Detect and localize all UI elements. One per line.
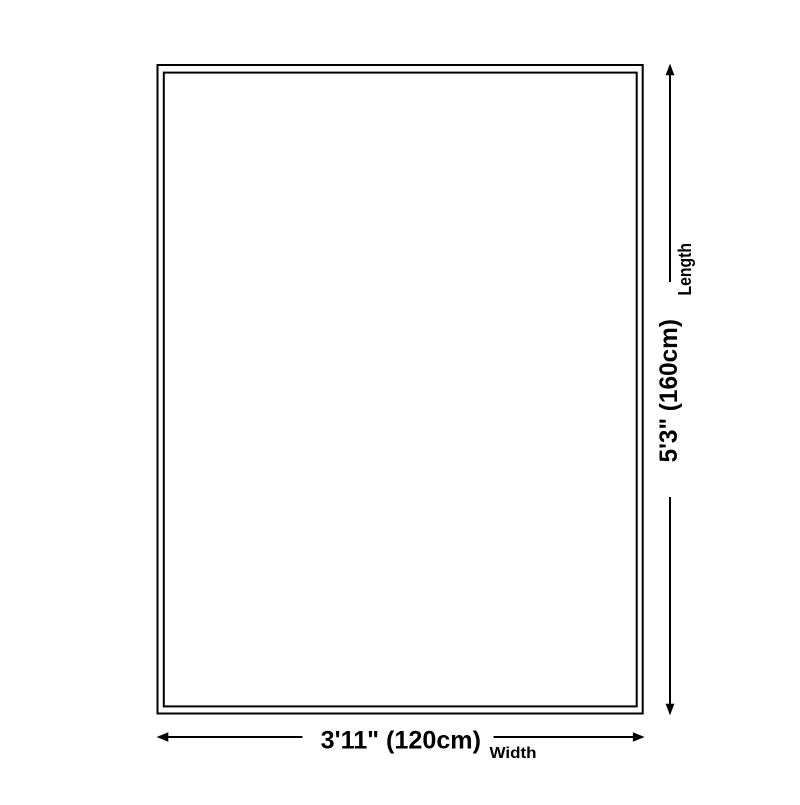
svg-text:Width: Width [490, 745, 537, 762]
svg-text:Length: Length [675, 243, 695, 296]
svg-text:5'3" (160cm): 5'3" (160cm) [655, 319, 683, 463]
svg-text:3'11" (120cm): 3'11" (120cm) [321, 726, 481, 754]
